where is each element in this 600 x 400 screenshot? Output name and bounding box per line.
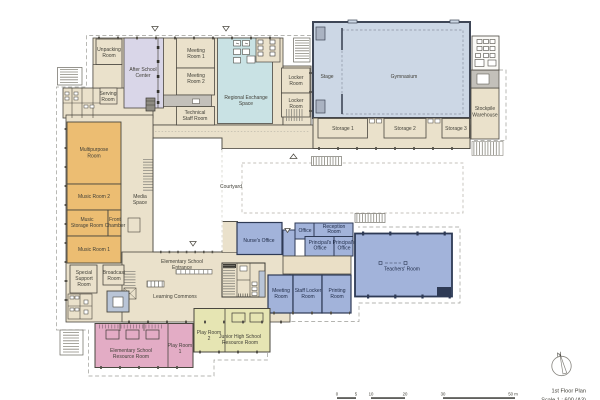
- svg-text:30: 30: [441, 392, 446, 397]
- svg-text:Resource Room: Resource Room: [113, 354, 149, 360]
- svg-text:Storage 3: Storage 3: [445, 126, 467, 132]
- svg-text:Center: Center: [135, 73, 150, 79]
- svg-text:Room: Room: [301, 294, 314, 300]
- svg-text:Office: Office: [314, 246, 327, 252]
- svg-text:1: 1: [179, 349, 182, 355]
- svg-text:10: 10: [369, 392, 374, 397]
- svg-text:Room: Room: [87, 154, 100, 160]
- svg-text:50 m: 50 m: [508, 392, 518, 397]
- svg-text:Nurse's Office: Nurse's Office: [243, 238, 274, 244]
- svg-text:Courtyard: Courtyard: [220, 184, 242, 190]
- svg-text:Office: Office: [338, 246, 351, 252]
- svg-text:Storage 2: Storage 2: [394, 126, 416, 132]
- svg-text:Room: Room: [77, 282, 90, 288]
- svg-text:2: 2: [208, 336, 211, 342]
- svg-text:Storage Room: Storage Room: [71, 223, 103, 229]
- svg-text:Room: Room: [330, 294, 343, 300]
- svg-text:Space: Space: [133, 200, 147, 206]
- svg-text:Gymnasium: Gymnasium: [391, 74, 418, 80]
- svg-text:Learning Commons: Learning Commons: [153, 294, 197, 300]
- svg-text:20: 20: [403, 392, 408, 397]
- svg-text:Stage: Stage: [320, 74, 333, 80]
- svg-text:Resource Room: Resource Room: [222, 340, 258, 346]
- svg-text:Teachers' Room: Teachers' Room: [384, 267, 420, 273]
- svg-text:Room: Room: [102, 53, 115, 59]
- svg-text:1st Floor Plan: 1st Floor Plan: [551, 389, 586, 395]
- svg-text:Storage 1: Storage 1: [332, 126, 354, 132]
- svg-text:Space: Space: [239, 101, 253, 107]
- svg-text:Room: Room: [289, 81, 302, 87]
- svg-text:Room: Room: [107, 276, 120, 282]
- svg-text:Room: Room: [101, 97, 114, 103]
- svg-text:Multipurpose: Multipurpose: [80, 147, 109, 153]
- svg-text:Room 2: Room 2: [187, 79, 205, 85]
- svg-text:Room: Room: [327, 229, 340, 235]
- svg-text:Room 1: Room 1: [187, 54, 205, 60]
- svg-text:Staff Room: Staff Room: [183, 116, 208, 122]
- svg-text:Warehouse: Warehouse: [472, 113, 498, 119]
- svg-text:Office: Office: [299, 228, 312, 234]
- svg-text:Music Room 2: Music Room 2: [78, 194, 110, 200]
- svg-text:Room: Room: [274, 294, 287, 300]
- svg-text:Stockpile: Stockpile: [475, 106, 496, 112]
- svg-text:Chamber: Chamber: [105, 223, 126, 229]
- svg-text:Music Room 1: Music Room 1: [78, 247, 110, 253]
